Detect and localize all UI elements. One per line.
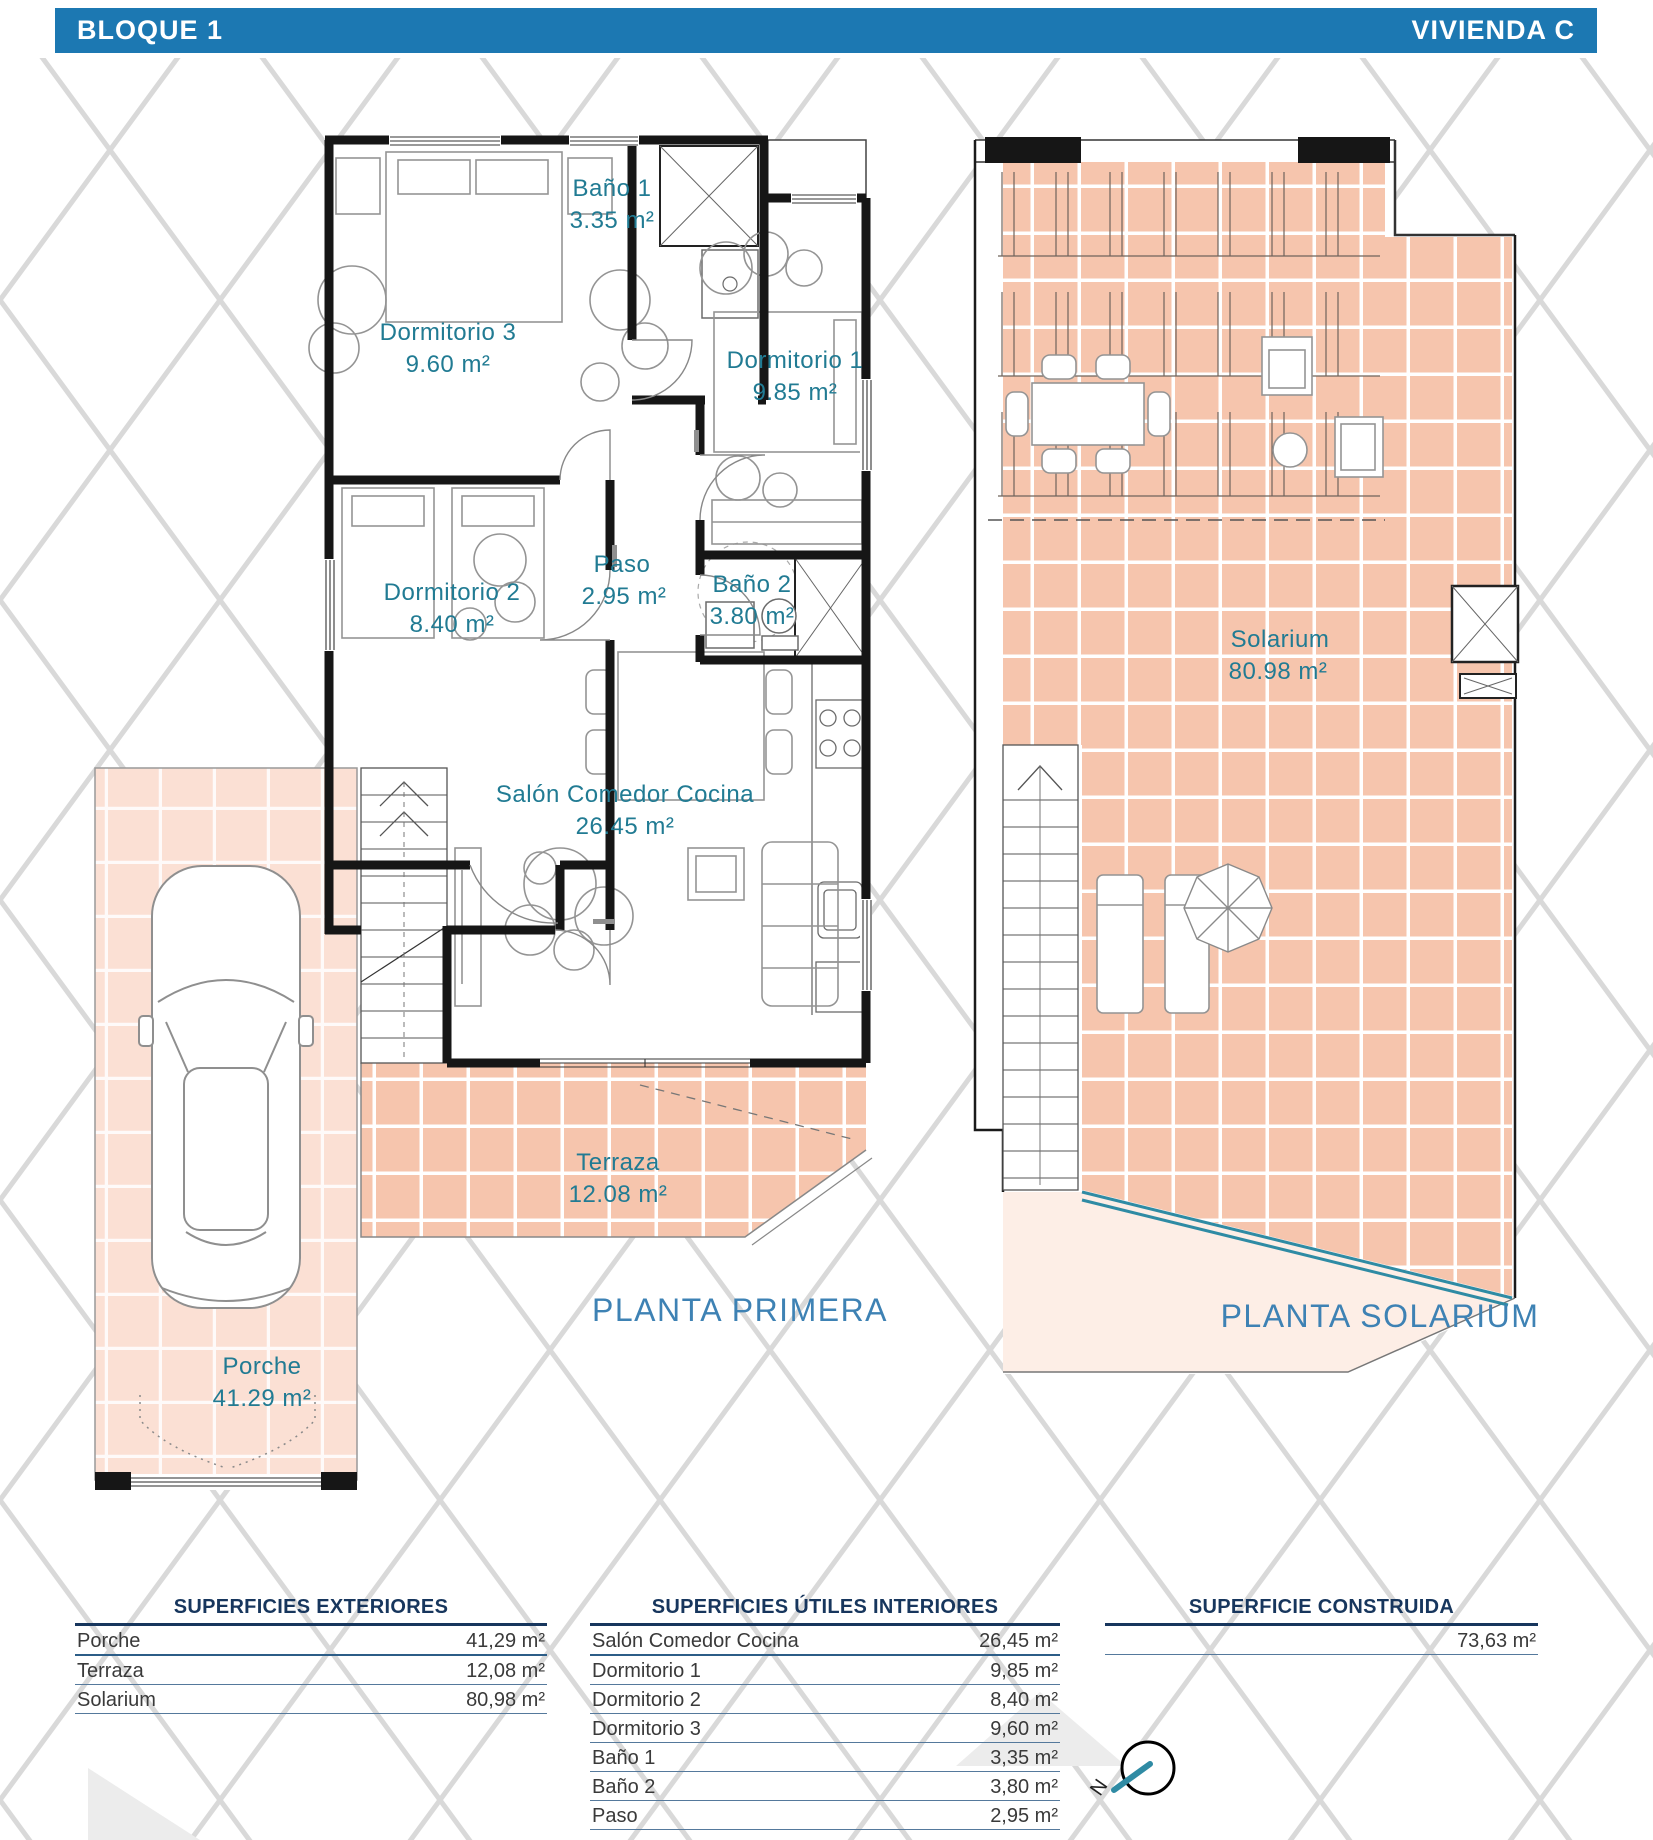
row-label: Baño 2 (592, 1776, 655, 1799)
row-value: 41,29 m² (466, 1630, 545, 1653)
plan-title-solarium: PLANTA SOLARIUM (1150, 1298, 1610, 1335)
row-value: 80,98 m² (466, 1689, 545, 1712)
row-value: 2,95 m² (990, 1805, 1058, 1828)
plan-canvas: Baño 1 3.35 m² Dormitorio 3 9.60 m² Dorm… (0, 0, 1653, 1840)
row-label: Solarium (77, 1689, 156, 1712)
room-label-porche-area: 41.29 m² (213, 1385, 312, 1412)
table-row: Terraza 12,08 m² (75, 1656, 547, 1685)
room-label-dormitorio3-name: Dormitorio 3 (380, 319, 517, 346)
floorplan-sheet: BLOQUE 1 VIVIENDA C (0, 0, 1653, 1840)
table-title: SUPERFICIES ÚTILES INTERIORES (590, 1596, 1060, 1626)
room-label-bano1-area: 3.35 m² (570, 207, 655, 234)
table-superficies-utiles-interiores: SUPERFICIES ÚTILES INTERIORES Salón Come… (590, 1596, 1060, 1830)
table-superficies-exteriores: SUPERFICIES EXTERIORES Porche 41,29 m² T… (75, 1596, 547, 1714)
room-label-dormitorio1-name: Dormitorio 1 (727, 347, 864, 374)
row-label: Paso (592, 1805, 638, 1828)
plan-title-primera: PLANTA PRIMERA (520, 1292, 960, 1329)
table-row: Salón Comedor Cocina 26,45 m² (590, 1626, 1060, 1656)
table-row: Paso 2,95 m² (590, 1801, 1060, 1830)
row-label: Baño 1 (592, 1747, 655, 1770)
room-label-bano2-name: Baño 2 (712, 571, 791, 598)
table-superficie-construida: SUPERFICIE CONSTRUIDA 73,63 m² (1105, 1596, 1538, 1655)
table-row: Baño 2 3,80 m² (590, 1772, 1060, 1801)
row-value: 9,60 m² (990, 1718, 1058, 1741)
parasol-icon (1184, 864, 1272, 952)
row-value: 3,80 m² (990, 1776, 1058, 1799)
stairs-icon (1003, 745, 1078, 1190)
room-label-paso-name: Paso (594, 551, 651, 578)
row-label: Terraza (77, 1660, 144, 1683)
table-row: Baño 1 3,35 m² (590, 1743, 1060, 1772)
room-label-dormitorio2-name: Dormitorio 2 (384, 579, 521, 606)
table-row: Solarium 80,98 m² (75, 1685, 547, 1714)
room-label-salon-name: Salón Comedor Cocina (496, 781, 754, 808)
row-value: 3,35 m² (990, 1747, 1058, 1770)
table-row: Dormitorio 2 8,40 m² (590, 1685, 1060, 1714)
room-label-porche-name: Porche (222, 1353, 301, 1380)
row-value: 26,45 m² (979, 1630, 1058, 1653)
row-label: Salón Comedor Cocina (592, 1630, 799, 1653)
stairs-icon (361, 768, 447, 1063)
table-title: SUPERFICIES EXTERIORES (75, 1596, 547, 1626)
vent-box-icon (1452, 586, 1518, 698)
room-label-terraza-name: Terraza (576, 1149, 660, 1176)
table-row: Porche 41,29 m² (75, 1626, 547, 1656)
row-value: 9,85 m² (990, 1660, 1058, 1683)
table-row: 73,63 m² (1105, 1626, 1538, 1655)
row-label: Dormitorio 2 (592, 1689, 701, 1712)
room-label-solarium-name: Solarium (1231, 626, 1330, 653)
room-label-terraza-area: 12.08 m² (569, 1181, 668, 1208)
room-label-dormitorio2-area: 8.40 m² (410, 611, 495, 638)
row-value: 8,40 m² (990, 1689, 1058, 1712)
table-row: Dormitorio 3 9,60 m² (590, 1714, 1060, 1743)
planta-solarium-drawing (975, 137, 1518, 1374)
table-title: SUPERFICIE CONSTRUIDA (1105, 1596, 1538, 1626)
row-label: Dormitorio 1 (592, 1660, 701, 1683)
room-label-dormitorio1-area: 9.85 m² (753, 379, 838, 406)
row-label: Dormitorio 3 (592, 1718, 701, 1741)
table-row: Dormitorio 1 9,85 m² (590, 1656, 1060, 1685)
room-label-dormitorio3-area: 9.60 m² (406, 351, 491, 378)
room-label-bano1-name: Baño 1 (572, 175, 651, 202)
row-value: 12,08 m² (466, 1660, 545, 1683)
row-label: Porche (77, 1630, 140, 1653)
room-label-solarium-area: 80.98 m² (1229, 658, 1328, 685)
room-label-bano2-area: 3.80 m² (710, 603, 795, 630)
car-icon (139, 866, 313, 1308)
room-label-paso-area: 2.95 m² (582, 583, 667, 610)
room-label-salon-area: 26.45 m² (576, 813, 675, 840)
row-value: 73,63 m² (1457, 1630, 1536, 1653)
